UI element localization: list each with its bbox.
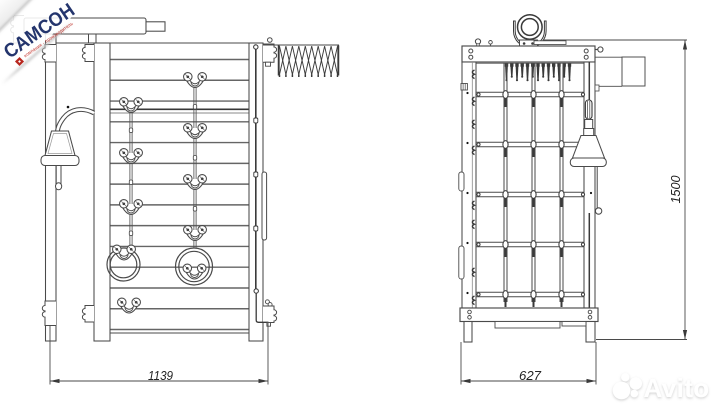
- svg-text:1139: 1139: [148, 369, 173, 383]
- svg-text:Avito: Avito: [644, 373, 710, 403]
- svg-text:627: 627: [519, 369, 542, 383]
- svg-text:1500: 1500: [669, 175, 683, 203]
